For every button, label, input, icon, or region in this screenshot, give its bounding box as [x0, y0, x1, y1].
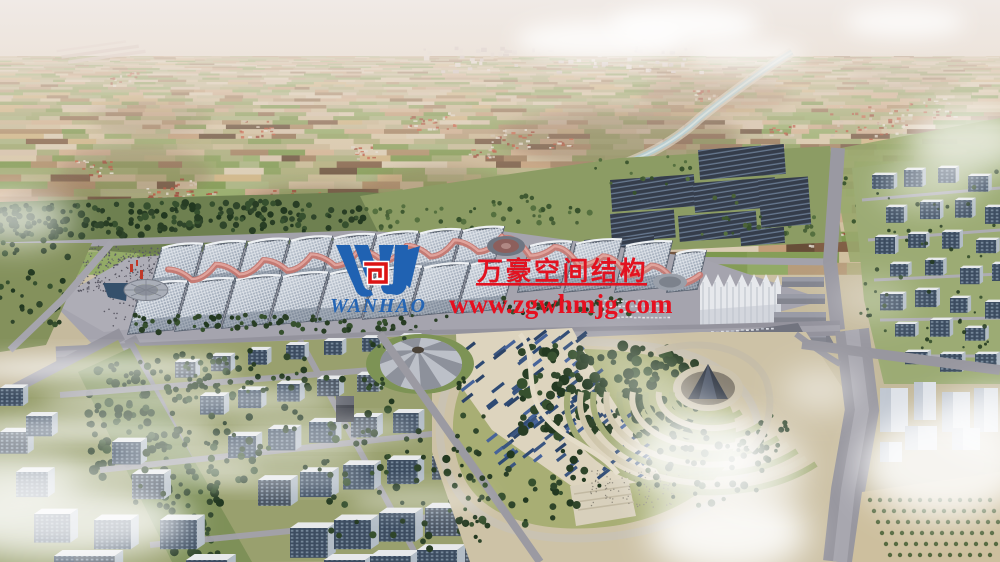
svg-text:万豪空间结构: 万豪空间结构: [477, 256, 648, 286]
svg-text:WANHAO: WANHAO: [330, 295, 426, 317]
svg-text:www.zgwhmjg.com: www.zgwhmjg.com: [449, 289, 673, 319]
